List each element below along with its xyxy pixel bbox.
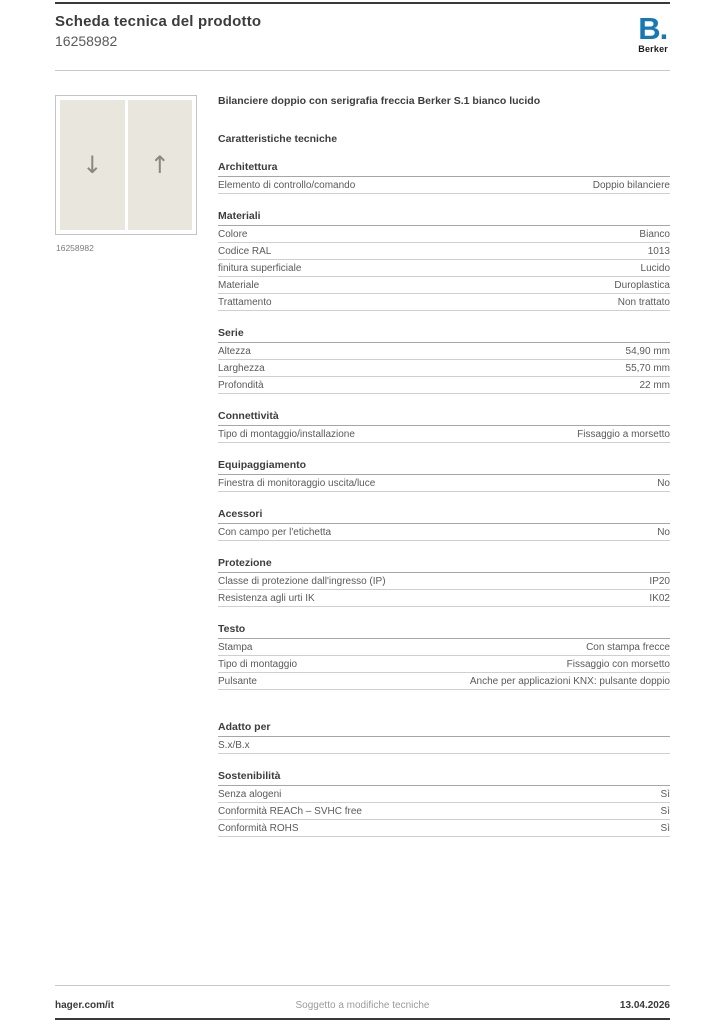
- header-divider: [55, 70, 670, 71]
- spec-label: S.x/B.x: [218, 740, 260, 751]
- footer-disclaimer: Soggetto a modifiche tecniche: [236, 1000, 489, 1011]
- spec-value: IP20: [649, 576, 670, 587]
- header: Scheda tecnica del prodotto 16258982 B. …: [55, 13, 670, 49]
- footer: hager.com/it Soggetto a modifiche tecnic…: [55, 1000, 670, 1011]
- spec-label: Senza alogeni: [218, 789, 291, 800]
- spec-label: Codice RAL: [218, 246, 281, 257]
- spec-value: Fissaggio con morsetto: [567, 659, 670, 670]
- spec-label: Tipo di montaggio/installazione: [218, 429, 365, 440]
- rocker-down: ↓: [60, 100, 125, 230]
- spec-label: Profondità: [218, 380, 274, 391]
- footer-website-link[interactable]: hager.com/it: [55, 1000, 236, 1011]
- spec-label: Altezza: [218, 346, 261, 357]
- spec-row: Profondità22 mm: [218, 377, 670, 394]
- spec-row: TrattamentoNon trattato: [218, 294, 670, 311]
- spec-row: Senza alogeniSì: [218, 786, 670, 803]
- spec-section: AcessoriCon campo per l'etichettaNo: [218, 508, 670, 541]
- spec-section: ProtezioneClasse di protezione dall'ingr…: [218, 557, 670, 607]
- specs-heading: Caratteristiche tecniche: [218, 133, 670, 145]
- spec-label: Larghezza: [218, 363, 275, 374]
- document-title: Scheda tecnica del prodotto: [55, 13, 670, 30]
- section-heading: Acessori: [218, 508, 670, 524]
- spec-label: Elemento di controllo/comando: [218, 180, 365, 191]
- spec-row: Finestra di monitoraggio uscita/luceNo: [218, 475, 670, 492]
- spec-label: Materiale: [218, 280, 269, 291]
- spec-label: Stampa: [218, 642, 262, 653]
- spec-value: Doppio bilanciere: [593, 180, 670, 191]
- spec-row: Resistenza agli urti IKIK02: [218, 590, 670, 607]
- section-heading: Testo: [218, 623, 670, 639]
- spec-label: Classe di protezione dall'ingresso (IP): [218, 576, 396, 587]
- berker-logo-name: Berker: [638, 45, 668, 54]
- spec-row: Conformità ROHSSì: [218, 820, 670, 837]
- spec-row: StampaCon stampa frecce: [218, 639, 670, 656]
- spec-row: ColoreBianco: [218, 226, 670, 243]
- spec-value: 54,90 mm: [626, 346, 670, 357]
- datasheet-page: Scheda tecnica del prodotto 16258982 B. …: [0, 0, 724, 1024]
- spec-value: No: [657, 478, 670, 489]
- spec-row: S.x/B.x: [218, 737, 670, 754]
- spec-value: Lucido: [641, 263, 670, 274]
- section-heading: Materiali: [218, 210, 670, 226]
- spec-value: No: [657, 527, 670, 538]
- spec-label: Finestra di monitoraggio uscita/luce: [218, 478, 385, 489]
- spec-value: Con stampa frecce: [586, 642, 670, 653]
- berker-logo: B. Berker: [638, 13, 668, 54]
- page-bottom-rule: [55, 1018, 670, 1020]
- product-title: Bilanciere doppio con serigrafia freccia…: [218, 95, 670, 108]
- spec-value: Fissaggio a morsetto: [577, 429, 670, 440]
- product-number: 16258982: [55, 33, 670, 49]
- arrow-up-icon: ↑: [150, 151, 170, 179]
- arrow-down-icon: ↓: [82, 151, 102, 179]
- specs-column: Bilanciere doppio con serigrafia freccia…: [218, 95, 670, 837]
- spec-value: Sì: [661, 823, 670, 834]
- section-heading: Adatto per: [218, 721, 670, 737]
- spec-row: MaterialeDuroplastica: [218, 277, 670, 294]
- spec-value: Bianco: [639, 229, 670, 240]
- spec-sections: ArchitetturaElemento di controllo/comand…: [218, 161, 670, 837]
- section-heading: Serie: [218, 327, 670, 343]
- spec-section: ArchitetturaElemento di controllo/comand…: [218, 161, 670, 194]
- spec-label: Tipo di montaggio: [218, 659, 307, 670]
- section-heading: Sostenibilità: [218, 770, 670, 786]
- spec-label: finitura superficiale: [218, 263, 311, 274]
- spec-row: Con campo per l'etichettaNo: [218, 524, 670, 541]
- spec-row: Tipo di montaggio/installazioneFissaggio…: [218, 426, 670, 443]
- section-heading: Connettività: [218, 410, 670, 426]
- section-heading: Equipaggiamento: [218, 459, 670, 475]
- spec-value: 22 mm: [639, 380, 670, 391]
- spec-row: PulsanteAnche per applicazioni KNX: puls…: [218, 673, 670, 690]
- spec-label: Pulsante: [218, 676, 267, 687]
- page-top-rule: [55, 2, 670, 4]
- spec-value: Sì: [661, 789, 670, 800]
- spec-row: Classe di protezione dall'ingresso (IP)I…: [218, 573, 670, 590]
- spec-section: Adatto perS.x/B.x: [218, 721, 670, 754]
- spec-row: Codice RAL1013: [218, 243, 670, 260]
- spec-section: MaterialiColoreBiancoCodice RAL1013finit…: [218, 210, 670, 311]
- footer-date: 13.04.2026: [489, 1000, 670, 1011]
- spec-section: SostenibilitàSenza alogeniSìConformità R…: [218, 770, 670, 837]
- berker-logo-icon: B.: [638, 13, 668, 44]
- spec-label: Conformità REACh – SVHC free: [218, 806, 372, 817]
- spec-label: Con campo per l'etichetta: [218, 527, 341, 538]
- spec-value: Non trattato: [618, 297, 670, 308]
- product-image-caption: 16258982: [56, 243, 94, 253]
- spec-label: Colore: [218, 229, 257, 240]
- spec-section: ConnettivitàTipo di montaggio/installazi…: [218, 410, 670, 443]
- spec-section: TestoStampaCon stampa frecceTipo di mont…: [218, 623, 670, 690]
- spec-row: Conformità REACh – SVHC freeSì: [218, 803, 670, 820]
- spec-value: Duroplastica: [614, 280, 670, 291]
- product-image: ↓ ↑: [55, 95, 197, 235]
- footer-divider: [55, 985, 670, 986]
- spec-section: EquipaggiamentoFinestra di monitoraggio …: [218, 459, 670, 492]
- rocker-up: ↑: [128, 100, 193, 230]
- section-heading: Protezione: [218, 557, 670, 573]
- spec-value: 55,70 mm: [626, 363, 670, 374]
- spec-label: Conformità ROHS: [218, 823, 309, 834]
- spec-row: Altezza54,90 mm: [218, 343, 670, 360]
- spec-value: IK02: [649, 593, 670, 604]
- spec-row: Tipo di montaggioFissaggio con morsetto: [218, 656, 670, 673]
- spec-value: 1013: [648, 246, 670, 257]
- spec-row: Elemento di controllo/comandoDoppio bila…: [218, 177, 670, 194]
- spec-label: Resistenza agli urti IK: [218, 593, 325, 604]
- spec-value: Sì: [661, 806, 670, 817]
- section-heading: Architettura: [218, 161, 670, 177]
- spec-section: SerieAltezza54,90 mmLarghezza55,70 mmPro…: [218, 327, 670, 394]
- spec-label: Trattamento: [218, 297, 282, 308]
- spec-value: Anche per applicazioni KNX: pulsante dop…: [470, 676, 670, 687]
- spec-row: Larghezza55,70 mm: [218, 360, 670, 377]
- spec-row: finitura superficialeLucido: [218, 260, 670, 277]
